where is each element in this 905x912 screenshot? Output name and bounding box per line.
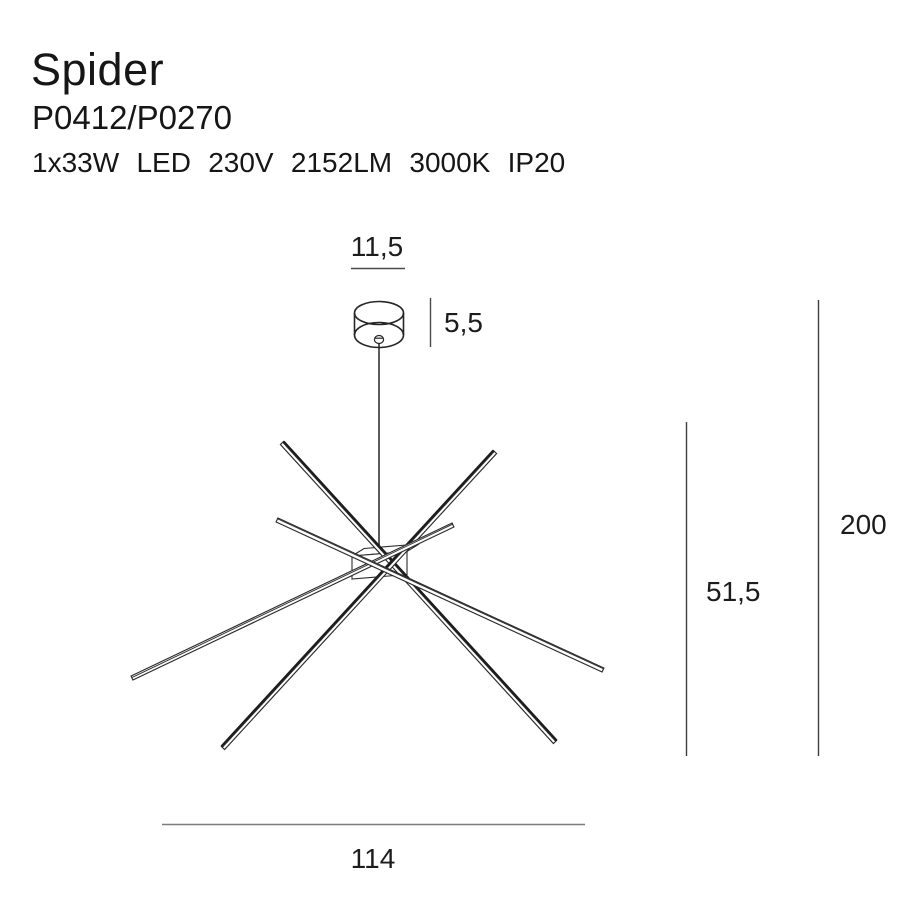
led-rod-midright-farleft: [131, 523, 454, 680]
ceiling-canopy: [355, 302, 404, 348]
dim-canopy-diameter-label: 11,5: [351, 231, 403, 262]
technical-drawing: 11,5 5,5 51,5 200 114: [0, 0, 905, 912]
rod-ridge-line: [278, 519, 604, 669]
dim-fixture-width: 114: [162, 825, 585, 875]
canopy-cable-grip: [374, 336, 383, 344]
canopy-top-ellipse: [355, 302, 404, 325]
dim-canopy-diameter: 11,5: [351, 231, 405, 269]
dim-total-height-label: 200: [840, 509, 887, 540]
led-rod-midleft-farright: [276, 518, 604, 672]
rod-ridge-line: [283, 442, 556, 741]
dim-fixture-height: 51,5: [687, 422, 761, 756]
dim-canopy-height: 5,5: [431, 298, 483, 347]
rod-body: [280, 442, 556, 744]
dim-canopy-height-label: 5,5: [444, 307, 483, 338]
rod-ridge-line: [132, 524, 452, 677]
dim-fixture-height-label: 51,5: [706, 576, 761, 607]
led-rod-upperleft-lowerright: [280, 442, 556, 744]
dim-fixture-width-label: 114: [351, 843, 396, 874]
rod-dark-edge: [284, 442, 557, 741]
dim-total-height: 200: [819, 300, 887, 756]
